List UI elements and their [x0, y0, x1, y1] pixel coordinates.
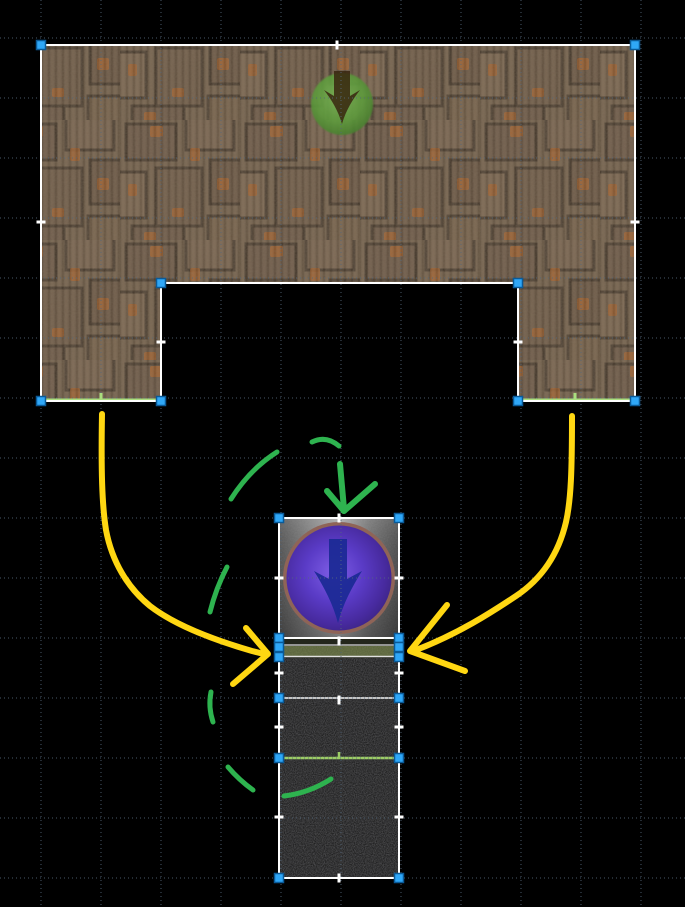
mid-edge-handle[interactable]: [275, 726, 284, 729]
mid-edge-handle[interactable]: [275, 577, 284, 580]
mid-edge-handle[interactable]: [631, 221, 640, 224]
selection-handle[interactable]: [275, 653, 284, 662]
room-canvas[interactable]: [0, 0, 685, 907]
selection-handle[interactable]: [275, 874, 284, 883]
mid-edge-handle[interactable]: [336, 41, 339, 50]
selection-handle[interactable]: [275, 754, 284, 763]
asphalt-block-column[interactable]: [279, 658, 399, 878]
mid-edge-handle[interactable]: [395, 577, 404, 580]
mid-edge-handle[interactable]: [338, 514, 341, 523]
selection-handle[interactable]: [37, 397, 46, 406]
mid-edge-handle[interactable]: [275, 816, 284, 819]
mid-edge-handle[interactable]: [275, 672, 284, 675]
mid-edge-handle[interactable]: [338, 874, 341, 883]
selection-handle[interactable]: [275, 694, 284, 703]
selection-handle[interactable]: [275, 643, 284, 652]
selection-handle[interactable]: [275, 514, 284, 523]
mid-edge-handle[interactable]: [395, 672, 404, 675]
selection-handle[interactable]: [395, 653, 404, 662]
selection-handle[interactable]: [157, 279, 166, 288]
selection-handle[interactable]: [395, 694, 404, 703]
mid-edge-handle[interactable]: [157, 341, 166, 344]
selection-handle[interactable]: [395, 634, 404, 643]
selection-handle[interactable]: [631, 397, 640, 406]
selection-handle[interactable]: [37, 41, 46, 50]
selection-handle[interactable]: [275, 634, 284, 643]
mid-edge-handle[interactable]: [338, 696, 341, 705]
selection-handle[interactable]: [514, 279, 523, 288]
selection-handle[interactable]: [395, 514, 404, 523]
mid-edge-handle[interactable]: [514, 341, 523, 344]
mid-edge-handle[interactable]: [395, 816, 404, 819]
selection-handle[interactable]: [514, 397, 523, 406]
mid-edge-handle[interactable]: [395, 726, 404, 729]
selection-handle[interactable]: [395, 643, 404, 652]
selection-handle[interactable]: [157, 397, 166, 406]
mid-edge-handle[interactable]: [338, 637, 341, 646]
selection-handle[interactable]: [395, 874, 404, 883]
mid-edge-handle[interactable]: [37, 221, 46, 224]
selection-handle[interactable]: [631, 41, 640, 50]
level-editor-canvas[interactable]: [0, 0, 685, 907]
selection-handle[interactable]: [395, 754, 404, 763]
